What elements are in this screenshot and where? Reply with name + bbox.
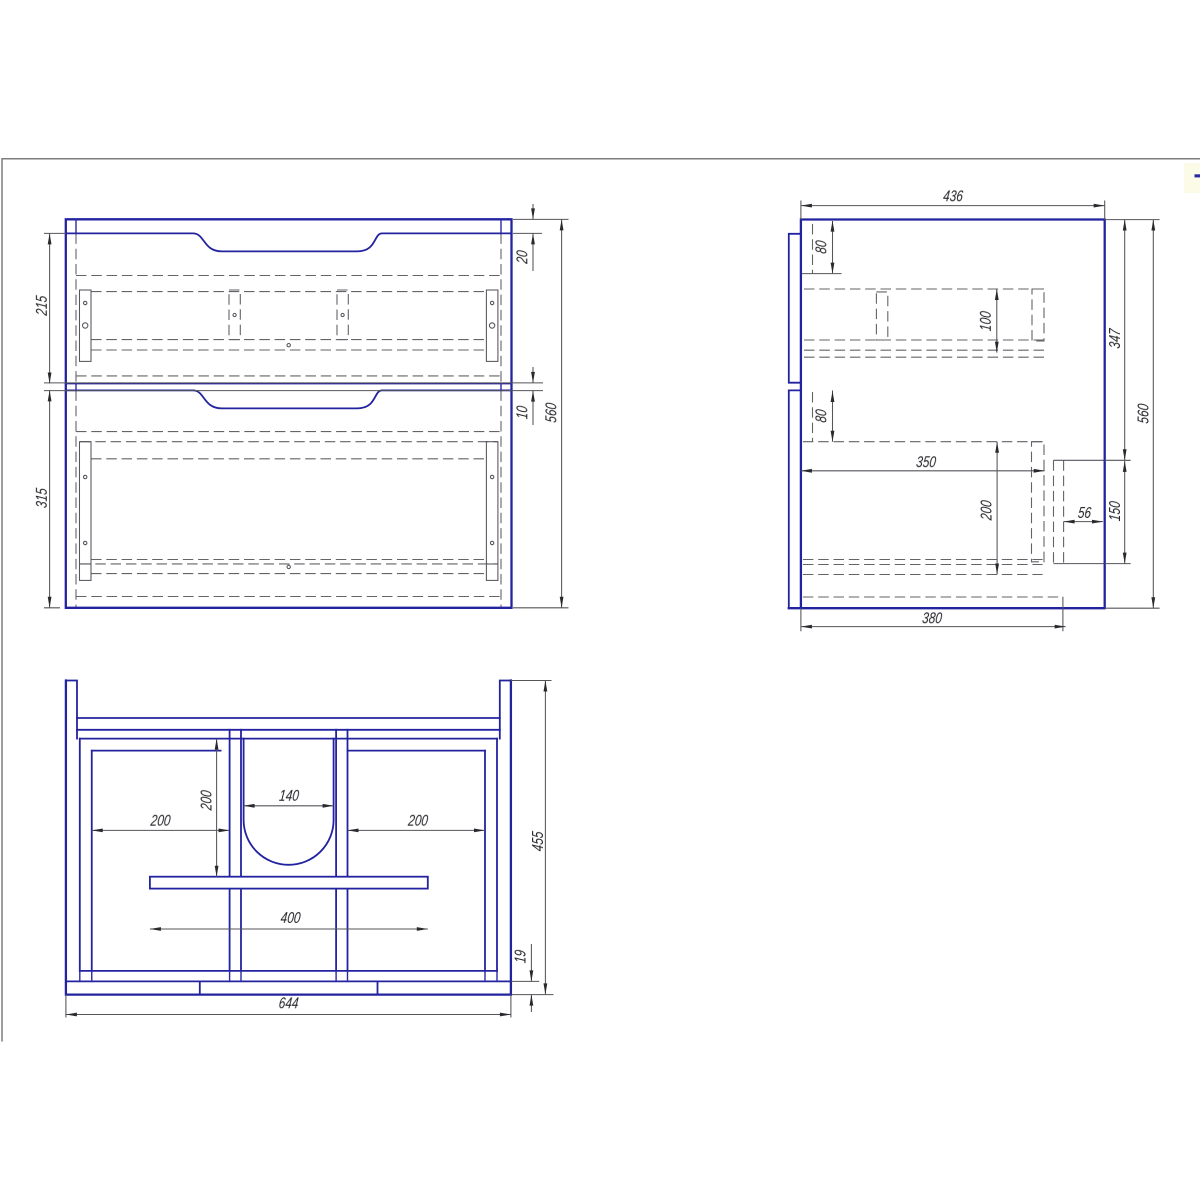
- svg-text:560: 560: [1134, 402, 1152, 424]
- svg-text:560: 560: [542, 402, 560, 424]
- svg-text:455: 455: [528, 830, 546, 852]
- svg-text:315: 315: [32, 487, 50, 509]
- svg-text:200: 200: [149, 811, 172, 829]
- svg-text:20: 20: [513, 249, 531, 265]
- svg-text:200: 200: [407, 811, 430, 829]
- svg-text:56: 56: [1077, 503, 1092, 521]
- svg-text:80: 80: [812, 408, 830, 423]
- svg-text:380: 380: [921, 609, 943, 627]
- svg-text:347: 347: [1105, 327, 1123, 350]
- svg-text:215: 215: [32, 294, 50, 317]
- svg-text:400: 400: [280, 908, 302, 926]
- svg-text:200: 200: [197, 789, 215, 812]
- svg-text:436: 436: [942, 187, 964, 205]
- svg-text:19: 19: [511, 949, 529, 964]
- svg-text:80: 80: [812, 239, 830, 254]
- svg-text:200: 200: [977, 499, 995, 522]
- svg-text:350: 350: [915, 453, 937, 471]
- svg-text:10: 10: [513, 405, 531, 420]
- svg-text:644: 644: [278, 994, 300, 1012]
- svg-text:100: 100: [976, 310, 994, 332]
- svg-text:140: 140: [278, 786, 300, 804]
- svg-text:150: 150: [1105, 500, 1123, 522]
